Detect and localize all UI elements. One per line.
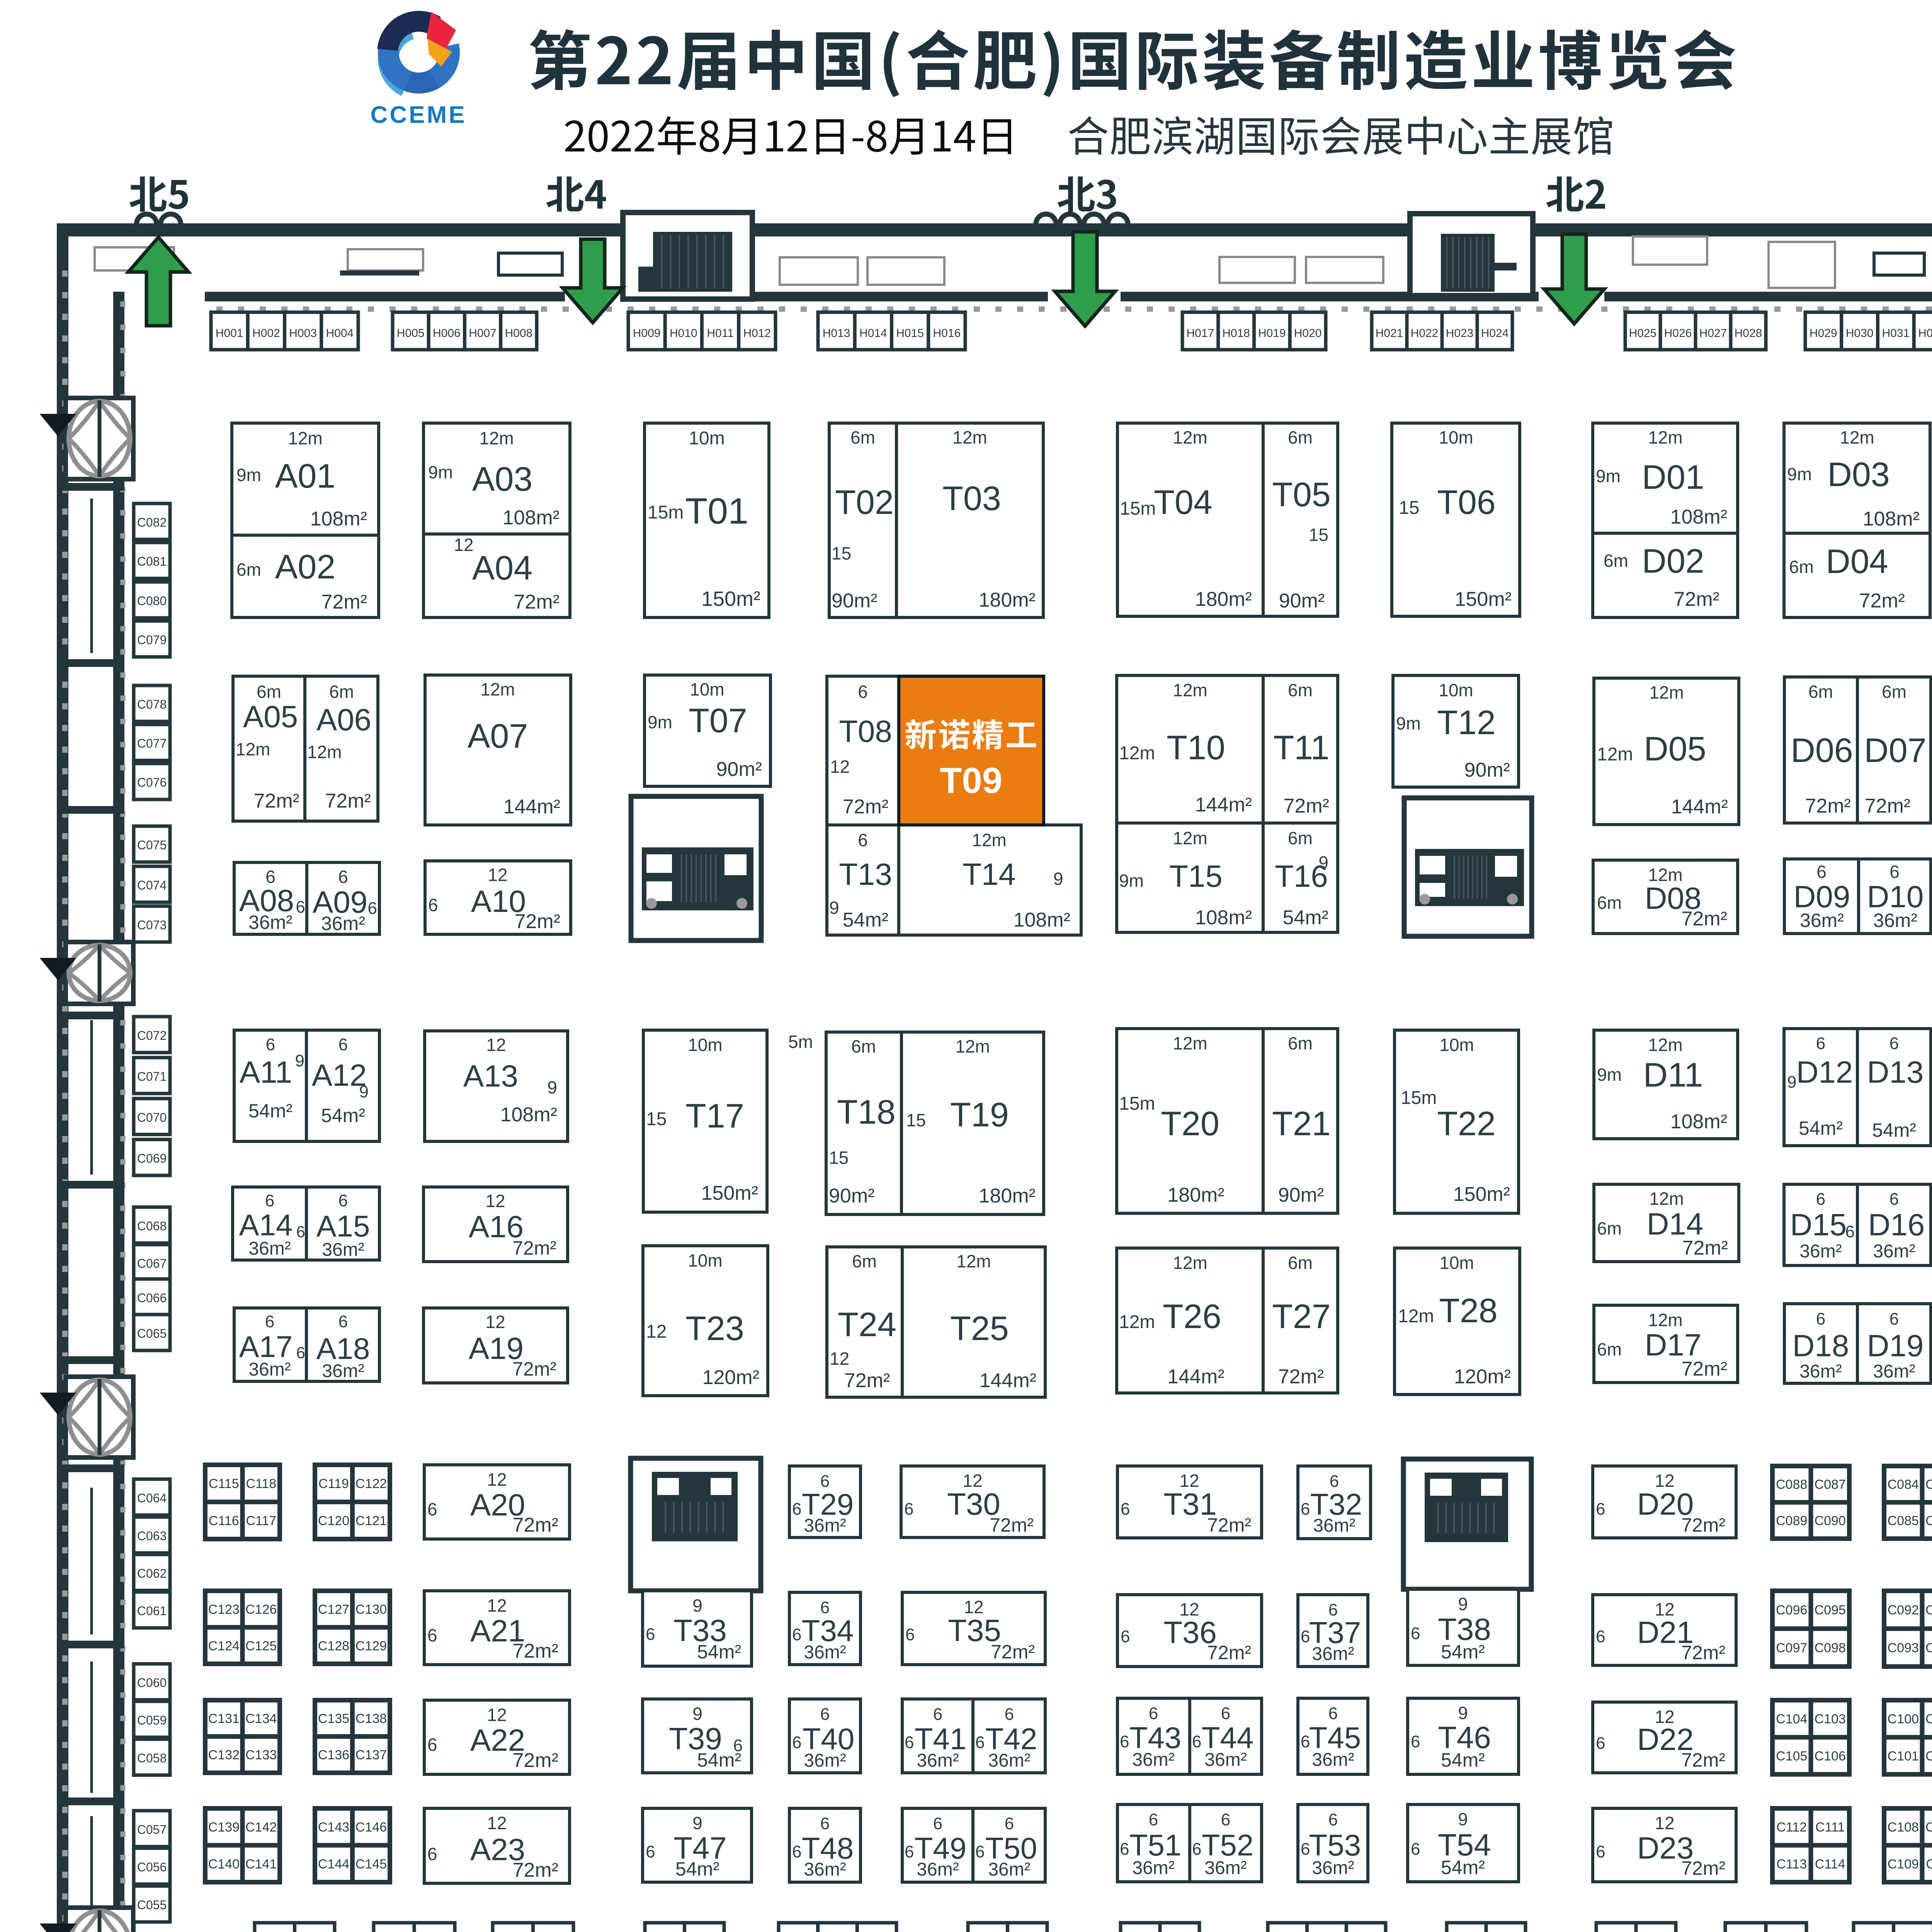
svg-text:6: 6 xyxy=(1411,1732,1420,1751)
svg-text:9m: 9m xyxy=(1787,464,1812,484)
svg-text:12: 12 xyxy=(454,535,473,555)
svg-text:A01: A01 xyxy=(275,457,336,495)
svg-text:C143: C143 xyxy=(318,1820,349,1835)
svg-text:6: 6 xyxy=(1221,1704,1230,1723)
svg-text:D18: D18 xyxy=(1793,1328,1849,1363)
svg-text:6m: 6m xyxy=(1808,682,1833,702)
svg-text:C145: C145 xyxy=(355,1857,387,1871)
svg-text:T12: T12 xyxy=(1437,703,1496,742)
svg-text:9: 9 xyxy=(1458,1809,1468,1829)
svg-text:6: 6 xyxy=(1120,1732,1129,1751)
svg-text:C140: C140 xyxy=(208,1857,240,1871)
svg-text:6: 6 xyxy=(368,899,377,918)
svg-text:72m²: 72m² xyxy=(513,1749,558,1772)
svg-text:A04: A04 xyxy=(472,549,533,587)
svg-text:C058: C058 xyxy=(137,1751,167,1765)
svg-text:T13: T13 xyxy=(839,857,892,891)
svg-text:180m²: 180m² xyxy=(1195,588,1252,611)
svg-text:15: 15 xyxy=(1309,525,1328,545)
svg-text:6: 6 xyxy=(296,898,305,917)
svg-text:15m: 15m xyxy=(1120,498,1156,519)
svg-text:C071: C071 xyxy=(137,1070,167,1083)
svg-text:12m: 12m xyxy=(236,739,270,759)
svg-text:9: 9 xyxy=(1318,852,1328,872)
svg-text:12: 12 xyxy=(485,1191,505,1211)
svg-text:12m: 12m xyxy=(480,679,515,699)
svg-text:C112: C112 xyxy=(1776,1820,1807,1835)
svg-text:15: 15 xyxy=(829,1148,849,1168)
svg-text:C105: C105 xyxy=(1776,1749,1807,1764)
svg-text:C128: C128 xyxy=(318,1639,349,1653)
svg-text:C083: C083 xyxy=(1925,1477,1932,1492)
svg-text:12m: 12m xyxy=(1597,744,1633,765)
svg-text:D16: D16 xyxy=(1868,1207,1925,1242)
svg-text:12m: 12m xyxy=(1173,680,1207,700)
svg-text:6: 6 xyxy=(1889,1034,1899,1053)
svg-text:6m: 6m xyxy=(1597,1218,1622,1238)
svg-text:6: 6 xyxy=(1889,1190,1899,1209)
svg-text:C111: C111 xyxy=(1815,1820,1845,1835)
svg-text:C086: C086 xyxy=(1925,1514,1932,1528)
svg-text:36m²: 36m² xyxy=(804,1642,846,1663)
svg-text:T27: T27 xyxy=(1272,1297,1331,1335)
svg-text:H011: H011 xyxy=(707,327,734,340)
svg-text:54m²: 54m² xyxy=(321,1105,365,1126)
svg-text:72m²: 72m² xyxy=(1207,1642,1251,1663)
svg-text:6m: 6m xyxy=(852,1251,877,1271)
svg-text:36m²: 36m² xyxy=(1132,1750,1174,1770)
svg-text:C089: C089 xyxy=(1776,1514,1807,1528)
svg-text:C092: C092 xyxy=(1888,1603,1919,1617)
svg-text:36m²: 36m² xyxy=(804,1750,846,1771)
svg-text:D07: D07 xyxy=(1864,731,1926,769)
svg-text:H003: H003 xyxy=(289,327,317,340)
svg-text:6: 6 xyxy=(265,1312,274,1331)
svg-text:90m²: 90m² xyxy=(716,758,762,781)
svg-text:6: 6 xyxy=(1816,862,1827,882)
svg-text:72m²: 72m² xyxy=(325,790,371,812)
svg-text:C126: C126 xyxy=(245,1602,277,1617)
svg-text:C124: C124 xyxy=(208,1639,240,1653)
svg-text:C120: C120 xyxy=(318,1514,349,1528)
svg-text:6m: 6m xyxy=(329,682,354,702)
svg-text:72m²: 72m² xyxy=(1859,590,1905,612)
svg-text:6: 6 xyxy=(646,1842,655,1861)
svg-text:C121: C121 xyxy=(355,1514,387,1528)
svg-text:6m: 6m xyxy=(1597,893,1622,913)
svg-text:H028: H028 xyxy=(1735,327,1762,340)
svg-text:A03: A03 xyxy=(472,460,533,498)
svg-text:36m²: 36m² xyxy=(1312,1644,1354,1664)
svg-text:12m: 12m xyxy=(952,427,987,447)
svg-text:5m: 5m xyxy=(788,1032,813,1052)
svg-text:C099: C099 xyxy=(1925,1712,1932,1726)
svg-text:36m²: 36m² xyxy=(804,1515,846,1536)
svg-text:T10: T10 xyxy=(1167,728,1225,767)
svg-text:C081: C081 xyxy=(137,554,167,568)
svg-text:9: 9 xyxy=(1458,1594,1468,1614)
svg-text:T24: T24 xyxy=(838,1305,896,1344)
svg-text:T25: T25 xyxy=(950,1309,1009,1347)
svg-text:D14: D14 xyxy=(1647,1207,1704,1241)
svg-text:C069: C069 xyxy=(137,1151,167,1165)
svg-text:15m: 15m xyxy=(1119,1094,1155,1114)
svg-text:6: 6 xyxy=(975,1733,985,1752)
svg-text:D02: D02 xyxy=(1642,542,1704,580)
svg-text:D11: D11 xyxy=(1643,1056,1703,1094)
svg-text:36m²: 36m² xyxy=(1873,910,1917,931)
svg-text:108m²: 108m² xyxy=(1863,508,1920,530)
svg-text:C098: C098 xyxy=(1815,1641,1846,1655)
svg-text:12m: 12m xyxy=(972,830,1006,850)
svg-text:C062: C062 xyxy=(137,1566,167,1580)
svg-text:36m²: 36m² xyxy=(804,1859,846,1880)
svg-text:12: 12 xyxy=(830,1349,849,1369)
svg-text:C142: C142 xyxy=(245,1820,277,1835)
svg-text:H006: H006 xyxy=(433,327,461,340)
svg-text:T28: T28 xyxy=(1439,1291,1498,1330)
svg-text:36m²: 36m² xyxy=(917,1859,959,1880)
svg-text:12: 12 xyxy=(487,1813,507,1833)
svg-text:36m²: 36m² xyxy=(322,1361,364,1381)
svg-text:120m²: 120m² xyxy=(702,1366,759,1389)
svg-text:108m²: 108m² xyxy=(310,508,367,530)
svg-text:6: 6 xyxy=(1889,1310,1899,1328)
svg-text:108m²: 108m² xyxy=(503,507,560,529)
svg-text:D10: D10 xyxy=(1867,879,1924,914)
svg-text:C116: C116 xyxy=(209,1514,239,1528)
svg-text:T14: T14 xyxy=(963,857,1016,891)
svg-text:6m: 6m xyxy=(1288,1033,1313,1053)
svg-text:C067: C067 xyxy=(137,1257,167,1270)
svg-text:C097: C097 xyxy=(1776,1641,1807,1655)
svg-text:12: 12 xyxy=(487,1705,507,1725)
svg-text:36m²: 36m² xyxy=(1132,1858,1174,1878)
svg-text:90m²: 90m² xyxy=(1464,759,1510,781)
svg-text:72m²: 72m² xyxy=(1682,1358,1727,1380)
svg-text:12m: 12m xyxy=(1119,1312,1155,1332)
svg-text:C117: C117 xyxy=(246,1514,276,1528)
svg-text:H017: H017 xyxy=(1187,327,1214,340)
svg-text:72m²: 72m² xyxy=(512,1358,556,1380)
svg-text:H010: H010 xyxy=(670,327,697,340)
svg-text:36m²: 36m² xyxy=(1799,1361,1842,1382)
svg-text:6: 6 xyxy=(933,1705,942,1724)
svg-text:54m²: 54m² xyxy=(843,909,888,931)
svg-text:A06: A06 xyxy=(316,702,371,737)
svg-text:54m²: 54m² xyxy=(697,1749,741,1771)
svg-text:12: 12 xyxy=(830,757,850,777)
svg-text:180m²: 180m² xyxy=(979,1185,1036,1207)
svg-text:6: 6 xyxy=(792,1842,801,1861)
svg-text:T15: T15 xyxy=(1169,859,1223,893)
svg-text:6: 6 xyxy=(820,1705,830,1724)
svg-text:144m²: 144m² xyxy=(980,1369,1036,1392)
svg-text:6: 6 xyxy=(646,1625,655,1644)
svg-text:9: 9 xyxy=(1053,869,1063,889)
svg-text:6: 6 xyxy=(858,830,868,850)
svg-text:6m: 6m xyxy=(1604,551,1628,571)
svg-text:H005: H005 xyxy=(397,327,425,340)
svg-text:T52: T52 xyxy=(1202,1828,1253,1862)
svg-text:9: 9 xyxy=(1787,1073,1796,1092)
svg-text:12: 12 xyxy=(487,1595,507,1616)
svg-text:C079: C079 xyxy=(137,633,167,647)
svg-text:C114: C114 xyxy=(1815,1857,1845,1871)
svg-text:6: 6 xyxy=(820,1814,830,1833)
svg-text:H009: H009 xyxy=(633,327,661,340)
svg-text:15: 15 xyxy=(906,1110,926,1130)
svg-text:6: 6 xyxy=(338,1035,348,1054)
svg-text:6: 6 xyxy=(427,1499,437,1519)
svg-text:12m: 12m xyxy=(956,1251,991,1271)
svg-text:15: 15 xyxy=(832,543,851,563)
svg-text:C091: C091 xyxy=(1925,1603,1932,1617)
svg-text:10m: 10m xyxy=(690,679,724,699)
svg-text:180m²: 180m² xyxy=(1167,1184,1224,1206)
svg-text:C093: C093 xyxy=(1888,1641,1919,1655)
svg-text:36m²: 36m² xyxy=(988,1859,1030,1880)
svg-text:6: 6 xyxy=(792,1733,801,1752)
svg-text:6: 6 xyxy=(1301,1732,1310,1751)
svg-text:A15: A15 xyxy=(316,1209,370,1243)
svg-text:6: 6 xyxy=(1596,1842,1605,1861)
svg-text:9: 9 xyxy=(829,898,839,918)
svg-text:72m²: 72m² xyxy=(254,790,299,812)
svg-text:6: 6 xyxy=(792,1500,801,1519)
svg-text:C123: C123 xyxy=(208,1602,240,1617)
svg-text:6: 6 xyxy=(296,1344,305,1362)
svg-text:T09: T09 xyxy=(940,760,1002,801)
svg-text:C130: C130 xyxy=(355,1602,387,1617)
svg-text:C082: C082 xyxy=(137,515,167,529)
svg-text:12m: 12m xyxy=(1649,1189,1684,1209)
svg-text:6: 6 xyxy=(1816,1190,1825,1209)
svg-text:36m²: 36m² xyxy=(248,912,293,933)
svg-text:6: 6 xyxy=(296,1223,305,1241)
svg-text:H019: H019 xyxy=(1258,327,1286,340)
svg-text:72m²: 72m² xyxy=(991,1641,1035,1663)
svg-text:H021: H021 xyxy=(1376,327,1403,340)
svg-text:C084: C084 xyxy=(1888,1477,1919,1492)
svg-text:C094: C094 xyxy=(1925,1641,1932,1655)
svg-text:54m²: 54m² xyxy=(1441,1641,1485,1663)
svg-text:12: 12 xyxy=(646,1321,667,1342)
svg-text:T17: T17 xyxy=(685,1097,744,1135)
svg-text:9m: 9m xyxy=(648,712,672,732)
svg-text:54m²: 54m² xyxy=(675,1858,719,1880)
svg-text:H008: H008 xyxy=(505,327,533,340)
svg-text:15m: 15m xyxy=(648,502,684,523)
svg-text:90m²: 90m² xyxy=(832,590,877,612)
svg-text:6: 6 xyxy=(338,1191,348,1210)
svg-text:C057: C057 xyxy=(137,1823,167,1837)
svg-text:6: 6 xyxy=(1120,1840,1129,1859)
svg-text:H014: H014 xyxy=(859,327,887,340)
svg-text:6m: 6m xyxy=(236,560,261,580)
svg-text:C066: C066 xyxy=(137,1291,167,1305)
svg-text:6m: 6m xyxy=(1789,557,1814,577)
svg-text:D12: D12 xyxy=(1796,1055,1853,1089)
svg-text:9: 9 xyxy=(692,1595,702,1616)
svg-text:6m: 6m xyxy=(1288,828,1313,848)
svg-text:C078: C078 xyxy=(137,697,167,711)
svg-text:9: 9 xyxy=(692,1704,702,1724)
svg-text:12m: 12m xyxy=(1173,1253,1207,1273)
svg-text:108m²: 108m² xyxy=(500,1104,557,1126)
svg-text:36m²: 36m² xyxy=(248,1238,291,1259)
svg-text:H001: H001 xyxy=(216,327,243,340)
svg-text:10m: 10m xyxy=(1439,1253,1474,1273)
svg-text:C115: C115 xyxy=(209,1476,239,1491)
svg-text:6: 6 xyxy=(1121,1500,1130,1519)
svg-text:6: 6 xyxy=(427,1844,437,1864)
svg-text:6m: 6m xyxy=(1288,427,1313,447)
svg-text:90m²: 90m² xyxy=(1278,1184,1324,1206)
svg-text:90m²: 90m² xyxy=(829,1185,874,1207)
svg-text:12m: 12m xyxy=(1173,427,1207,447)
svg-text:6: 6 xyxy=(792,1625,801,1644)
svg-text:12m: 12m xyxy=(955,1036,990,1056)
svg-text:C059: C059 xyxy=(137,1713,167,1727)
svg-text:9m: 9m xyxy=(1596,466,1621,486)
svg-text:T08: T08 xyxy=(839,714,892,748)
svg-text:12: 12 xyxy=(488,865,507,885)
svg-text:54m²: 54m² xyxy=(1799,1117,1843,1139)
svg-text:36m²: 36m² xyxy=(1312,1750,1354,1770)
svg-text:C122: C122 xyxy=(355,1476,387,1491)
svg-text:15: 15 xyxy=(1399,498,1419,518)
svg-text:6m: 6m xyxy=(1288,1253,1313,1273)
svg-text:72m²: 72m² xyxy=(1284,795,1329,817)
svg-text:C144: C144 xyxy=(318,1857,349,1871)
svg-text:12m: 12m xyxy=(1398,1306,1434,1327)
svg-text:180m²: 180m² xyxy=(979,589,1036,611)
svg-text:A14: A14 xyxy=(239,1208,293,1242)
svg-text:120m²: 120m² xyxy=(1454,1366,1511,1388)
svg-text:C133: C133 xyxy=(245,1748,277,1762)
svg-text:36m²: 36m² xyxy=(1313,1515,1355,1536)
svg-text:72m²: 72m² xyxy=(1278,1366,1324,1388)
svg-text:C125: C125 xyxy=(245,1639,277,1653)
svg-text:6m: 6m xyxy=(1288,680,1313,700)
svg-text:72m²: 72m² xyxy=(1674,588,1719,611)
svg-text:36m²: 36m² xyxy=(1204,1750,1247,1770)
svg-text:6: 6 xyxy=(1889,862,1900,882)
svg-text:6: 6 xyxy=(1005,1705,1014,1724)
svg-text:9: 9 xyxy=(547,1077,557,1097)
svg-text:72m²: 72m² xyxy=(321,591,367,613)
svg-text:10m: 10m xyxy=(1439,680,1473,700)
svg-text:6: 6 xyxy=(1328,1704,1338,1723)
svg-text:144m²: 144m² xyxy=(1671,796,1728,818)
svg-text:9: 9 xyxy=(295,1051,304,1070)
svg-text:90m²: 90m² xyxy=(1279,590,1325,612)
svg-text:C109: C109 xyxy=(1888,1857,1919,1871)
svg-text:C087: C087 xyxy=(1815,1477,1846,1492)
svg-text:72m²: 72m² xyxy=(1682,1237,1728,1259)
svg-text:6: 6 xyxy=(1005,1814,1014,1833)
svg-text:D05: D05 xyxy=(1644,730,1706,768)
svg-text:C131: C131 xyxy=(208,1711,240,1726)
svg-text:9: 9 xyxy=(692,1813,702,1833)
svg-text:D06: D06 xyxy=(1791,731,1853,769)
svg-text:C065: C065 xyxy=(137,1327,167,1340)
svg-text:T20: T20 xyxy=(1161,1104,1219,1143)
svg-text:36m²: 36m² xyxy=(248,1359,291,1380)
svg-text:C073: C073 xyxy=(137,918,167,932)
svg-text:72m²: 72m² xyxy=(513,1640,558,1662)
svg-text:C107: C107 xyxy=(1925,1820,1932,1835)
svg-text:36m²: 36m² xyxy=(1799,1241,1842,1262)
svg-text:C134: C134 xyxy=(245,1711,277,1726)
svg-text:H020: H020 xyxy=(1294,327,1322,340)
svg-text:150m²: 150m² xyxy=(1455,588,1512,611)
svg-text:6: 6 xyxy=(1301,1500,1310,1519)
svg-text:C061: C061 xyxy=(137,1604,167,1618)
svg-text:T03: T03 xyxy=(942,479,1001,517)
svg-text:C068: C068 xyxy=(137,1219,167,1233)
svg-text:C060: C060 xyxy=(137,1676,167,1690)
svg-text:6: 6 xyxy=(1301,1840,1310,1859)
svg-text:6: 6 xyxy=(1845,1222,1855,1241)
svg-text:12: 12 xyxy=(1655,1813,1674,1833)
svg-text:C104: C104 xyxy=(1776,1712,1807,1726)
svg-text:C135: C135 xyxy=(318,1711,349,1726)
svg-text:C127: C127 xyxy=(318,1602,349,1617)
svg-text:36m²: 36m² xyxy=(322,1240,364,1260)
svg-text:T05: T05 xyxy=(1272,475,1331,514)
svg-text:108m²: 108m² xyxy=(1195,906,1252,929)
svg-text:10m: 10m xyxy=(1439,1035,1474,1055)
svg-text:12: 12 xyxy=(486,1035,506,1055)
svg-text:72m²: 72m² xyxy=(843,796,888,818)
svg-text:C096: C096 xyxy=(1776,1603,1807,1617)
svg-text:D04: D04 xyxy=(1826,542,1888,580)
svg-text:A07: A07 xyxy=(468,717,528,755)
svg-text:C103: C103 xyxy=(1815,1712,1846,1726)
svg-text:C090: C090 xyxy=(1815,1514,1846,1528)
svg-text:C100: C100 xyxy=(1888,1712,1919,1726)
svg-text:H027: H027 xyxy=(1699,327,1727,340)
svg-text:H013: H013 xyxy=(823,327,850,340)
svg-text:6: 6 xyxy=(1596,1734,1605,1753)
svg-text:6: 6 xyxy=(338,867,348,887)
svg-text:D03: D03 xyxy=(1827,455,1889,493)
svg-text:12: 12 xyxy=(485,1312,505,1332)
svg-text:12m: 12m xyxy=(1119,743,1155,764)
svg-text:6m: 6m xyxy=(1882,682,1906,702)
svg-text:C075: C075 xyxy=(137,838,167,852)
svg-text:D09: D09 xyxy=(1794,879,1850,914)
svg-text:T02: T02 xyxy=(835,483,894,521)
svg-text:6: 6 xyxy=(905,1625,915,1644)
svg-text:H026: H026 xyxy=(1664,327,1692,340)
svg-text:H016: H016 xyxy=(933,327,961,340)
svg-text:10m: 10m xyxy=(1439,427,1473,447)
svg-text:D19: D19 xyxy=(1867,1328,1924,1363)
svg-text:36m²: 36m² xyxy=(1204,1858,1247,1878)
svg-text:C101: C101 xyxy=(1888,1749,1919,1764)
svg-text:9m: 9m xyxy=(236,465,261,485)
svg-text:C074: C074 xyxy=(137,878,167,892)
svg-text:6: 6 xyxy=(427,1625,437,1645)
svg-text:72m²: 72m² xyxy=(1865,795,1910,817)
svg-text:C146: C146 xyxy=(355,1820,387,1835)
svg-text:6: 6 xyxy=(933,1814,942,1833)
svg-text:H031: H031 xyxy=(1882,327,1910,340)
svg-text:36m²: 36m² xyxy=(988,1750,1030,1771)
